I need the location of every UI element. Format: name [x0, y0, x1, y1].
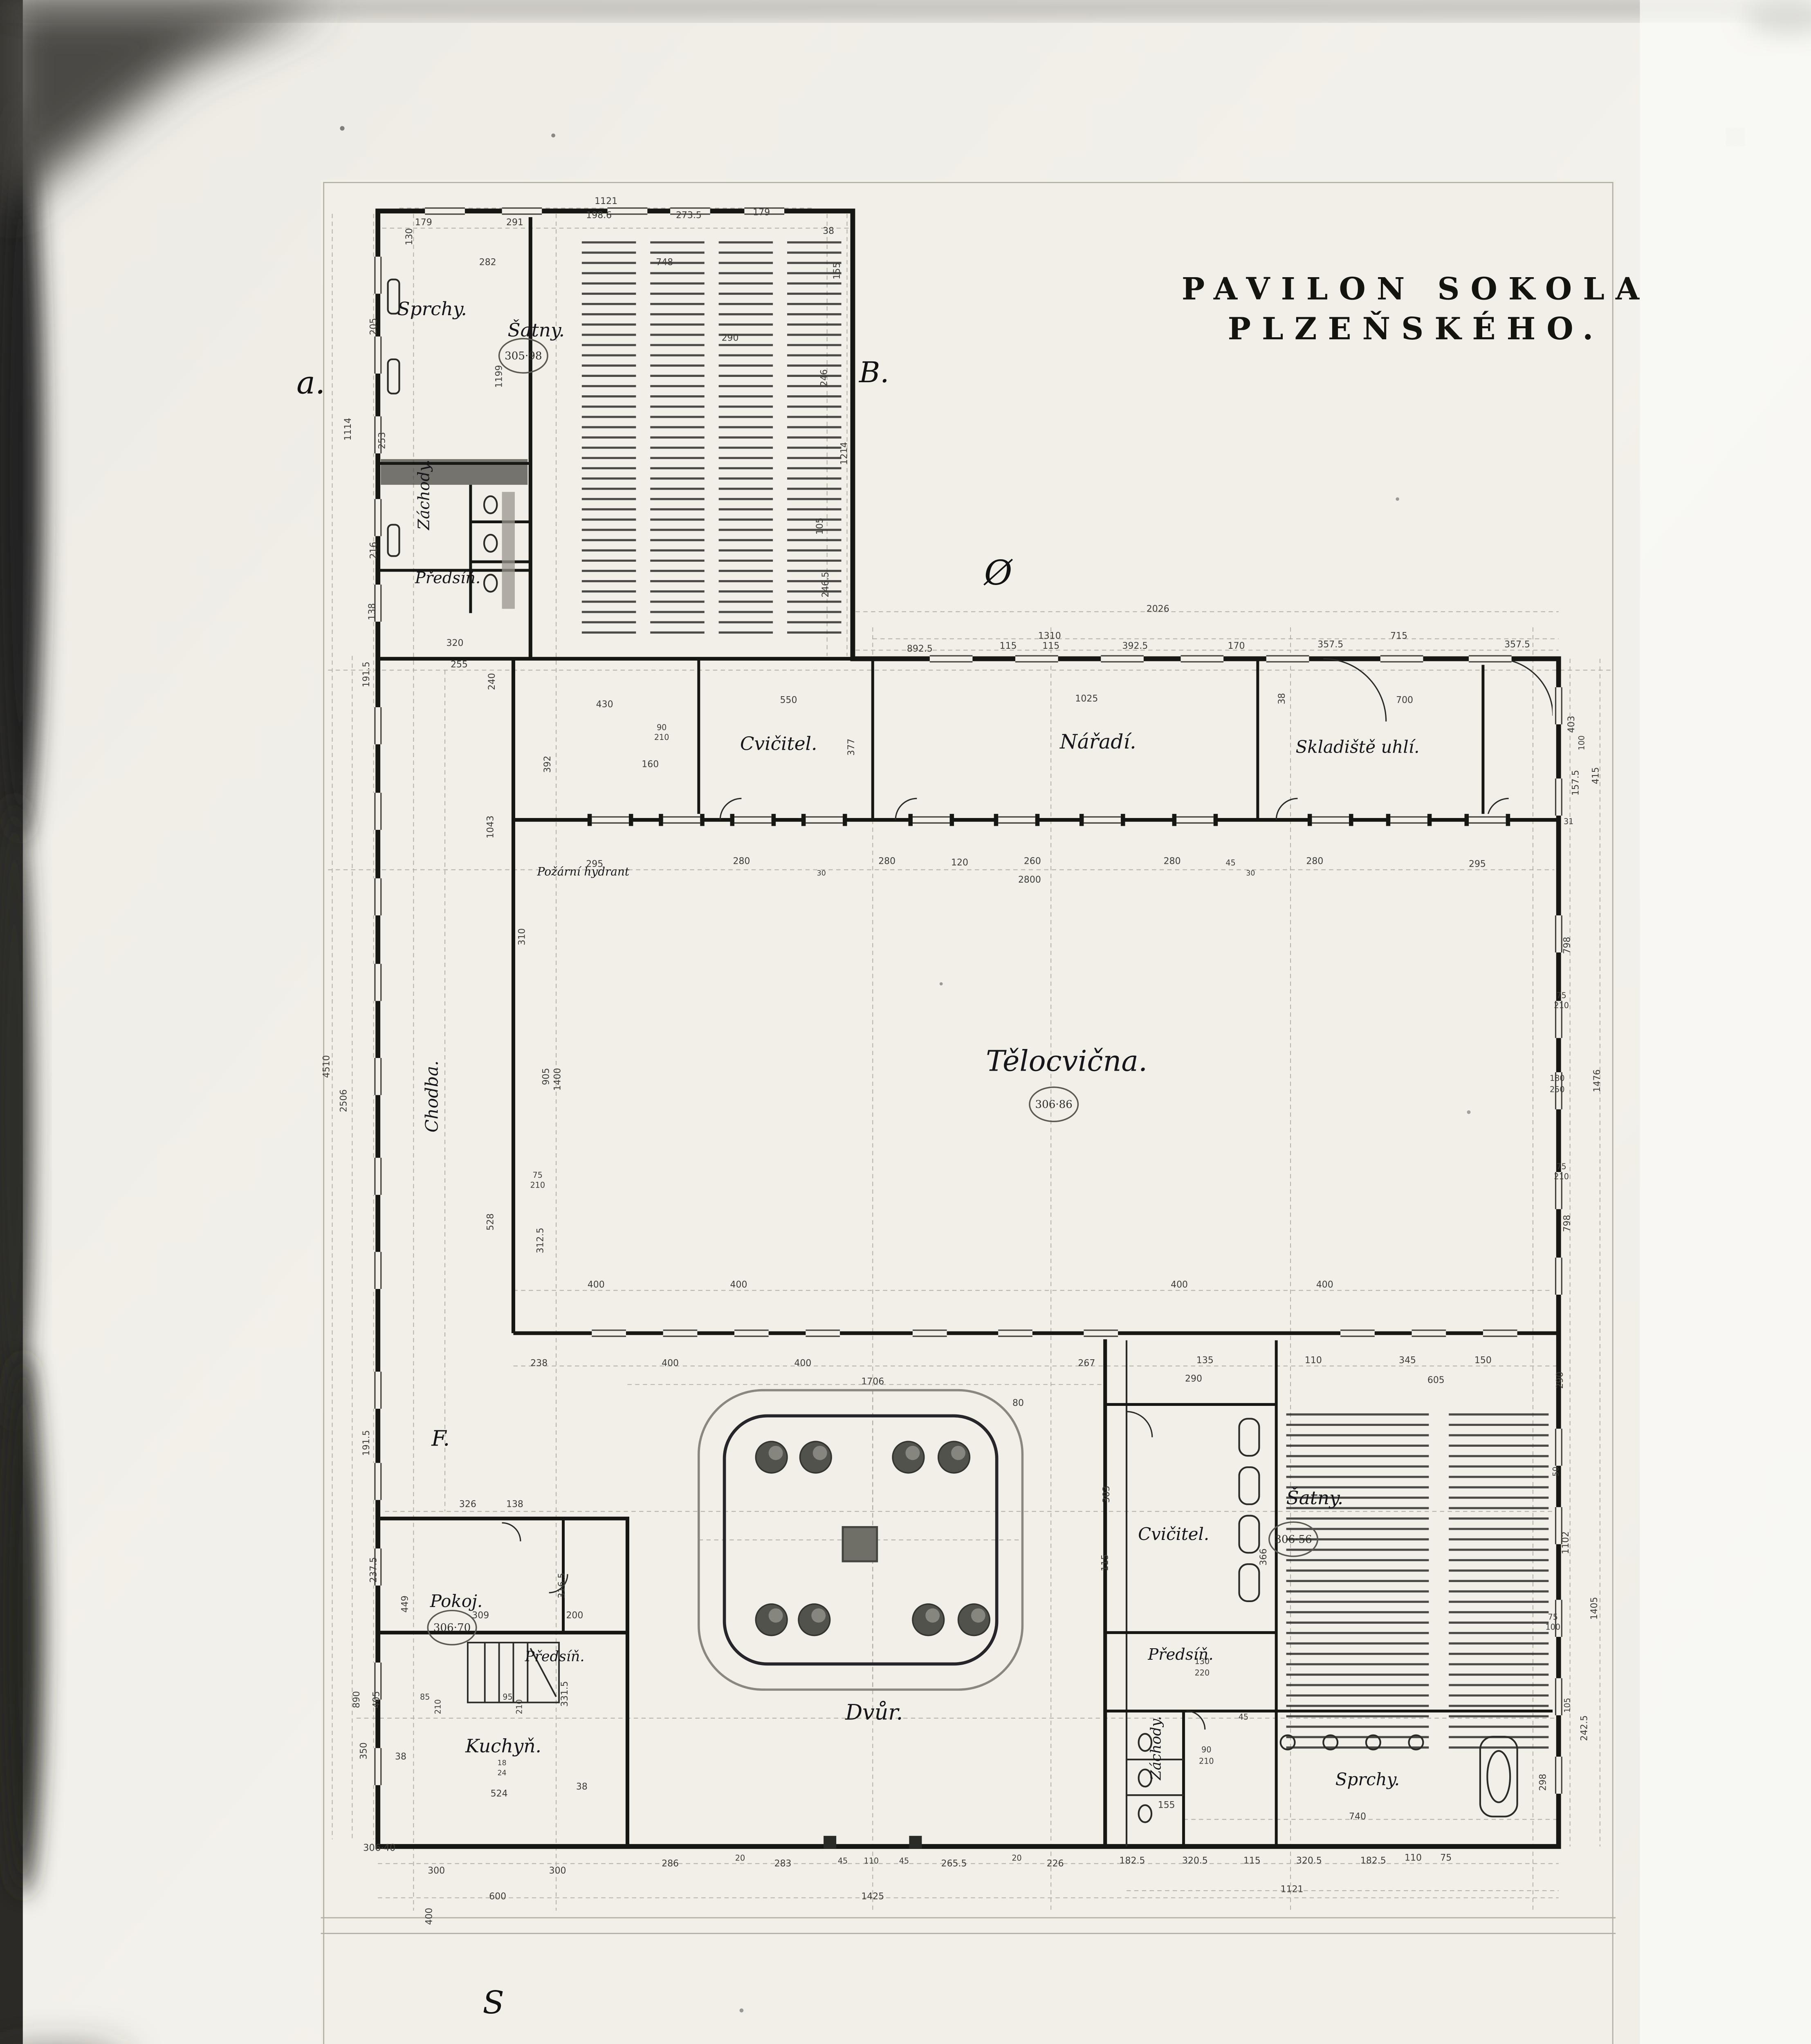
dimension-label: 75 [1557, 991, 1566, 1000]
dimension-label: 210 [514, 1699, 524, 1715]
window-gap [998, 814, 1035, 826]
dimension-label: 300 [428, 1866, 445, 1876]
dimension-label: 31 [1564, 817, 1573, 826]
title-line-2: PLZEŇSKÉHO. [1228, 311, 1605, 347]
dimension-label: 130 [404, 228, 415, 245]
dimension-label: 1476 [1592, 1069, 1602, 1092]
dimension-label: 400 [424, 1908, 435, 1925]
dimension-label: 237.5 [369, 1557, 379, 1583]
window-gap [1553, 778, 1565, 816]
window-gap [806, 814, 843, 826]
window-gap [592, 1327, 626, 1340]
dimension-label: 110 [1305, 1355, 1322, 1365]
wall-pier [950, 814, 954, 826]
window-gap [372, 1058, 384, 1095]
wall-pier [908, 814, 912, 826]
marker-letter: S [482, 1985, 504, 2021]
dimension-label: 400 [662, 1358, 679, 1368]
dimension-label: 905 [541, 1068, 552, 1085]
dimension-label: 400 [1316, 1280, 1333, 1290]
dimension-label: 280 [1306, 856, 1323, 867]
room-label: Záchody. [1148, 1716, 1165, 1780]
window-gap [372, 964, 384, 1001]
window-gap [1380, 653, 1423, 665]
dimension-label: 198.6 [586, 211, 612, 221]
wall-pier [1465, 814, 1469, 826]
window-gap [1101, 653, 1144, 665]
dimension-label: 38 [576, 1782, 588, 1792]
window-gap [372, 499, 384, 536]
dimension-label: 246 [819, 369, 830, 386]
window-gap [1084, 1327, 1118, 1340]
window-gap [734, 814, 772, 826]
window-gap [372, 1463, 384, 1500]
dimension-label: 400 [730, 1280, 747, 1290]
dimension-label: 253 [377, 432, 388, 449]
dimension-label: 226 [1047, 1859, 1064, 1869]
area-number: 306·56 [1275, 1533, 1312, 1546]
dimension-label: 115 [1000, 641, 1017, 651]
window-gap [1553, 1257, 1565, 1295]
dimension-label: 115 [1243, 1856, 1261, 1866]
window-gap [1312, 814, 1349, 826]
window-gap [372, 336, 384, 374]
wall-pier [843, 814, 847, 826]
dimension-label: 550 [780, 695, 797, 706]
dimension-label: 295 [1469, 859, 1486, 870]
window-gap [1553, 1757, 1565, 1794]
dimension-label: 191.5 [361, 661, 372, 687]
dimension-label: 150 [1474, 1355, 1492, 1365]
area-number: 305·98 [505, 350, 542, 362]
room-label: Sprchy. [1335, 1769, 1400, 1789]
dimension-label: 748 [656, 258, 673, 268]
dimension-label: 290 [1555, 1372, 1565, 1389]
dimension-label: 600 [489, 1892, 506, 1902]
dimension-label: 1199 [494, 365, 505, 388]
marker-letter: F. [431, 1426, 450, 1451]
room-label: Předsíň. [415, 569, 480, 587]
dimension-label: 290 [1185, 1374, 1202, 1384]
dimension-label: 280 [1164, 856, 1181, 867]
window-gap [1469, 653, 1512, 665]
dimension-label: 45 [899, 1856, 909, 1866]
dimension-label: 283 [774, 1859, 792, 1869]
dimension-label: 45 [1239, 1712, 1248, 1721]
wall-pier [1386, 814, 1390, 826]
window-gap [913, 1327, 947, 1340]
dimension-label: 45 [1225, 858, 1235, 867]
marker-letter: a. [296, 365, 325, 401]
dimension-label: 250 [1550, 1085, 1565, 1094]
wall-pier [1308, 814, 1312, 826]
dimension-label: 1310 [1038, 631, 1061, 641]
dimension-label: 400 [1171, 1280, 1188, 1290]
dimension-label: 75 [1440, 1853, 1452, 1863]
room-label: Předsíň. [1147, 1645, 1213, 1664]
dimension-label: 740 [1349, 1812, 1366, 1822]
window-gap [930, 653, 973, 665]
dimension-label: 1405 [1589, 1597, 1600, 1620]
dimension-label: 246.5 [821, 572, 831, 598]
dimension-label: 38 [395, 1752, 406, 1762]
window-gap [734, 1327, 769, 1340]
dimension-label: 160 [642, 759, 659, 769]
window-gap [1412, 1327, 1446, 1340]
dimension-label: 715 [1390, 631, 1407, 641]
dimension-label: 95 [503, 1692, 512, 1702]
dimension-label: 316.5 [557, 1573, 567, 1598]
dimension-label: 1214 [839, 442, 850, 465]
room-label: Předsíň. [525, 1648, 585, 1665]
window-gap [425, 205, 465, 217]
dimension-label: 138 [367, 603, 377, 620]
wall-pier [659, 814, 663, 826]
dimension-label: 105 [815, 518, 825, 535]
window-gap [372, 793, 384, 830]
window-gap [1390, 814, 1427, 826]
dimension-label: 100 [1577, 735, 1587, 751]
dimension-label: 350 [359, 1742, 369, 1759]
dimension-label: 310 [517, 928, 527, 946]
dimension-label: 286 [662, 1859, 679, 1869]
courtyard-monument [843, 1527, 877, 1562]
dimension-label: 1114 [343, 418, 353, 441]
room-label: Tělocvična. [986, 1044, 1147, 1078]
dimension-label: 415 [1591, 767, 1601, 784]
dimension-label: 300 [549, 1866, 566, 1876]
window-gap [1469, 814, 1506, 826]
title-line-1: PAVILON SOKOLA [1182, 271, 1650, 307]
window-gap [1553, 1429, 1565, 1466]
wall-pier [1079, 814, 1084, 826]
dimension-label: 1400 [553, 1068, 563, 1091]
scanned-plan-sheet: { "title": { "line1": "PAVILON SOKOLA", … [0, 0, 1811, 2044]
window-gap [372, 257, 384, 294]
dimension-label: 38 [1277, 693, 1287, 704]
dimension-label: 392.5 [1122, 641, 1148, 651]
dimension-label: 306·40 [363, 1842, 395, 1853]
dimension-label: 320.5 [1182, 1856, 1208, 1866]
window-gap [502, 205, 542, 217]
dimension-label: 2506 [339, 1089, 349, 1112]
wall-pier [588, 814, 592, 826]
dimension-label: 280 [733, 856, 750, 867]
window-gap [663, 1327, 698, 1340]
room-label: Pokoj. [430, 1591, 482, 1611]
dimension-label: 100 [1545, 1623, 1560, 1632]
dimension-label: 50 [1551, 1466, 1561, 1476]
wall-pier [1172, 814, 1176, 826]
dimension-label: 2026 [1147, 604, 1169, 614]
window-gap [372, 1372, 384, 1409]
room-label: Cvičitel. [740, 733, 817, 755]
dimension-label: 210 [433, 1699, 443, 1715]
window-gap [608, 205, 648, 217]
dimension-label: 366 [1259, 1549, 1269, 1566]
dimension-label: 210 [1199, 1757, 1214, 1766]
window-gap [1266, 653, 1309, 665]
dimension-label: 115 [1100, 1554, 1111, 1571]
wall-pier [700, 814, 704, 826]
dimension-label: 115 [1042, 641, 1059, 651]
dimension-label: 345 [1399, 1355, 1416, 1365]
window-gap [1015, 653, 1058, 665]
room-label: Skladiště uhlí. [1296, 737, 1420, 757]
dimension-label: 20 [735, 1853, 745, 1863]
marker-letter: B. [858, 356, 889, 389]
dimension-label: 170 [1228, 641, 1245, 651]
dimension-label: 120 [951, 858, 968, 868]
dimension-label: 157.5 [1571, 770, 1581, 796]
dimension-label: 90 [1201, 1745, 1211, 1755]
dimension-label: 30 [817, 870, 826, 878]
dimension-label: 180 [1550, 1074, 1565, 1083]
dimension-label: 220 [1195, 1668, 1210, 1677]
dimension-label: 403 [1566, 716, 1577, 733]
dimension-label: 392 [543, 756, 553, 773]
dimension-label: 238 [530, 1358, 548, 1368]
dimension-label: 110 [864, 1856, 879, 1866]
window-gap [1181, 653, 1224, 665]
dimension-label: 1121 [595, 196, 617, 206]
dimension-label: 210 [1554, 1172, 1569, 1181]
window-gap [913, 814, 950, 826]
wall-pier [772, 814, 776, 826]
room-label: Kuchyň. [465, 1735, 541, 1757]
wall-pier [801, 814, 806, 826]
dimension-label: 182.5 [1360, 1856, 1386, 1866]
dimension-label: 298 [1538, 1774, 1548, 1791]
window-gap [1084, 814, 1121, 826]
wall-pier [1035, 814, 1039, 826]
wall-pier [1121, 814, 1125, 826]
dimension-label: 273.5 [676, 211, 702, 221]
dimension-label: 75 [1548, 1612, 1558, 1622]
dimension-label: 290 [722, 333, 739, 343]
dimension-label: 280 [878, 856, 895, 867]
window-gap [1553, 687, 1565, 724]
dimension-label: 265.5 [941, 1859, 967, 1869]
room-label: Požární hydrant [537, 865, 630, 879]
dimension-label: 210 [654, 733, 669, 742]
dimension-label: 179 [753, 208, 770, 218]
dimension-label: 179 [415, 217, 432, 228]
wall-pier [1214, 814, 1218, 826]
window-gap [1483, 1327, 1517, 1340]
dimension-label: 309 [472, 1611, 489, 1621]
dimension-label: 798 [1562, 937, 1573, 954]
room-label: Šatny. [508, 319, 565, 341]
area-number: 306·70 [433, 1622, 471, 1634]
marker-letter: Ø [983, 553, 1013, 593]
dimension-label: 85 [420, 1692, 430, 1702]
room-label: Sprchy. [397, 298, 467, 320]
dimension-label: 38 [823, 226, 834, 236]
dimension-label: 90 [657, 723, 667, 732]
dimension-label: 528 [486, 1213, 496, 1230]
dimension-label: 400 [794, 1358, 811, 1368]
dimension-label: 2800 [1018, 875, 1041, 885]
dimension-label: 75 [533, 1170, 543, 1180]
dimension-label: 312.5 [536, 1228, 546, 1253]
dimension-label: 700 [1396, 695, 1413, 706]
dimension-label: 357.5 [1317, 639, 1343, 650]
room-label: Dvůr. [845, 1700, 903, 1725]
window-gap [592, 814, 629, 826]
wall-pier [1427, 814, 1432, 826]
room-label: Záchody. [415, 459, 433, 530]
dimension-label: 191.5 [361, 1430, 372, 1456]
dimension-label: 30 [1246, 870, 1255, 878]
dimension-label: 377 [846, 739, 857, 756]
floorplan-canvas: 1121179291198.6273.517928274838155290119… [0, 0, 1811, 2044]
dimension-label: 282 [479, 258, 496, 268]
dimension-label: 105 [1563, 1698, 1572, 1713]
dimension-label: 430 [596, 699, 613, 710]
dimension-label: 798 [1562, 1215, 1573, 1232]
dimension-label: 205 [369, 318, 379, 335]
dimension-label: 210 [1554, 1001, 1569, 1010]
wall-pier [994, 814, 998, 826]
dimension-label: 1102 [1561, 1531, 1571, 1554]
dimension-label: 357.5 [1504, 639, 1530, 650]
dimension-label: 216 [369, 542, 379, 559]
dimension-label: 4510 [322, 1055, 332, 1078]
room-label: Cvičitel. [1138, 1524, 1209, 1544]
dimension-label: 331.5 [560, 1681, 570, 1707]
dimension-label: 400 [588, 1280, 605, 1290]
wall-pier [1506, 814, 1510, 826]
dimension-label: 135 [1196, 1355, 1214, 1365]
window-gap [372, 707, 384, 744]
dimension-label: 1043 [486, 816, 496, 838]
room-label: Nářadí. [1059, 730, 1136, 753]
wall-pier [730, 814, 734, 826]
dimension-label: 1706 [861, 1377, 884, 1387]
dimension-label: 242.5 [1579, 1715, 1589, 1741]
dimension-label: 24 [497, 1769, 506, 1777]
dimension-label: 138 [506, 1499, 523, 1510]
dimension-label: 890 [352, 1691, 362, 1708]
dimension-label: 326 [459, 1499, 476, 1510]
dimension-label: 449 [400, 1596, 410, 1613]
window-gap [998, 1327, 1032, 1340]
dimension-label: 291 [506, 217, 523, 228]
dimension-label: 320.5 [1296, 1856, 1322, 1866]
dimension-label: 1121 [1281, 1884, 1304, 1894]
dimension-label: 303 [1102, 1486, 1112, 1503]
dimension-label: 405 [372, 1691, 382, 1708]
dimension-label: 182.5 [1120, 1856, 1145, 1866]
wall-pier [629, 814, 633, 826]
window-gap [806, 1327, 840, 1340]
window-gap [663, 814, 700, 826]
dimension-label: 255 [451, 659, 468, 670]
window-gap [372, 879, 384, 916]
dimension-label: 200 [566, 1611, 583, 1621]
window-gap [372, 1158, 384, 1195]
room-label: Chodba. [422, 1060, 442, 1132]
dimension-label: 75 [1557, 1162, 1566, 1171]
dimension-label: 155 [832, 262, 842, 280]
dimension-label: 110 [1405, 1853, 1422, 1863]
dimension-label: 45 [838, 1856, 848, 1866]
area-number: 306·86 [1035, 1098, 1072, 1111]
dimension-label: 260 [1024, 856, 1041, 867]
dimension-label: 524 [491, 1789, 508, 1799]
dimension-label: 20 [1012, 1853, 1021, 1863]
dimension-label: 1425 [861, 1892, 884, 1902]
dimension-label: 605 [1427, 1375, 1445, 1385]
window-gap [1340, 1327, 1375, 1340]
dimension-label: 155 [1158, 1800, 1175, 1811]
window-gap [1176, 814, 1214, 826]
dimension-label: 240 [487, 673, 497, 690]
wall-pier [1349, 814, 1353, 826]
dimension-label: 80 [1012, 1398, 1024, 1408]
dimension-label: 892.5 [907, 644, 933, 654]
window-gap [372, 1252, 384, 1289]
dimension-label: 18 [497, 1759, 506, 1767]
room-label: Šatny. [1286, 1487, 1343, 1509]
dimension-label: 267 [1078, 1358, 1095, 1368]
dimension-label: 320 [447, 638, 464, 648]
window-gap [372, 1748, 384, 1785]
dimension-label: 1025 [1075, 694, 1098, 704]
dimension-label: 210 [530, 1180, 545, 1190]
